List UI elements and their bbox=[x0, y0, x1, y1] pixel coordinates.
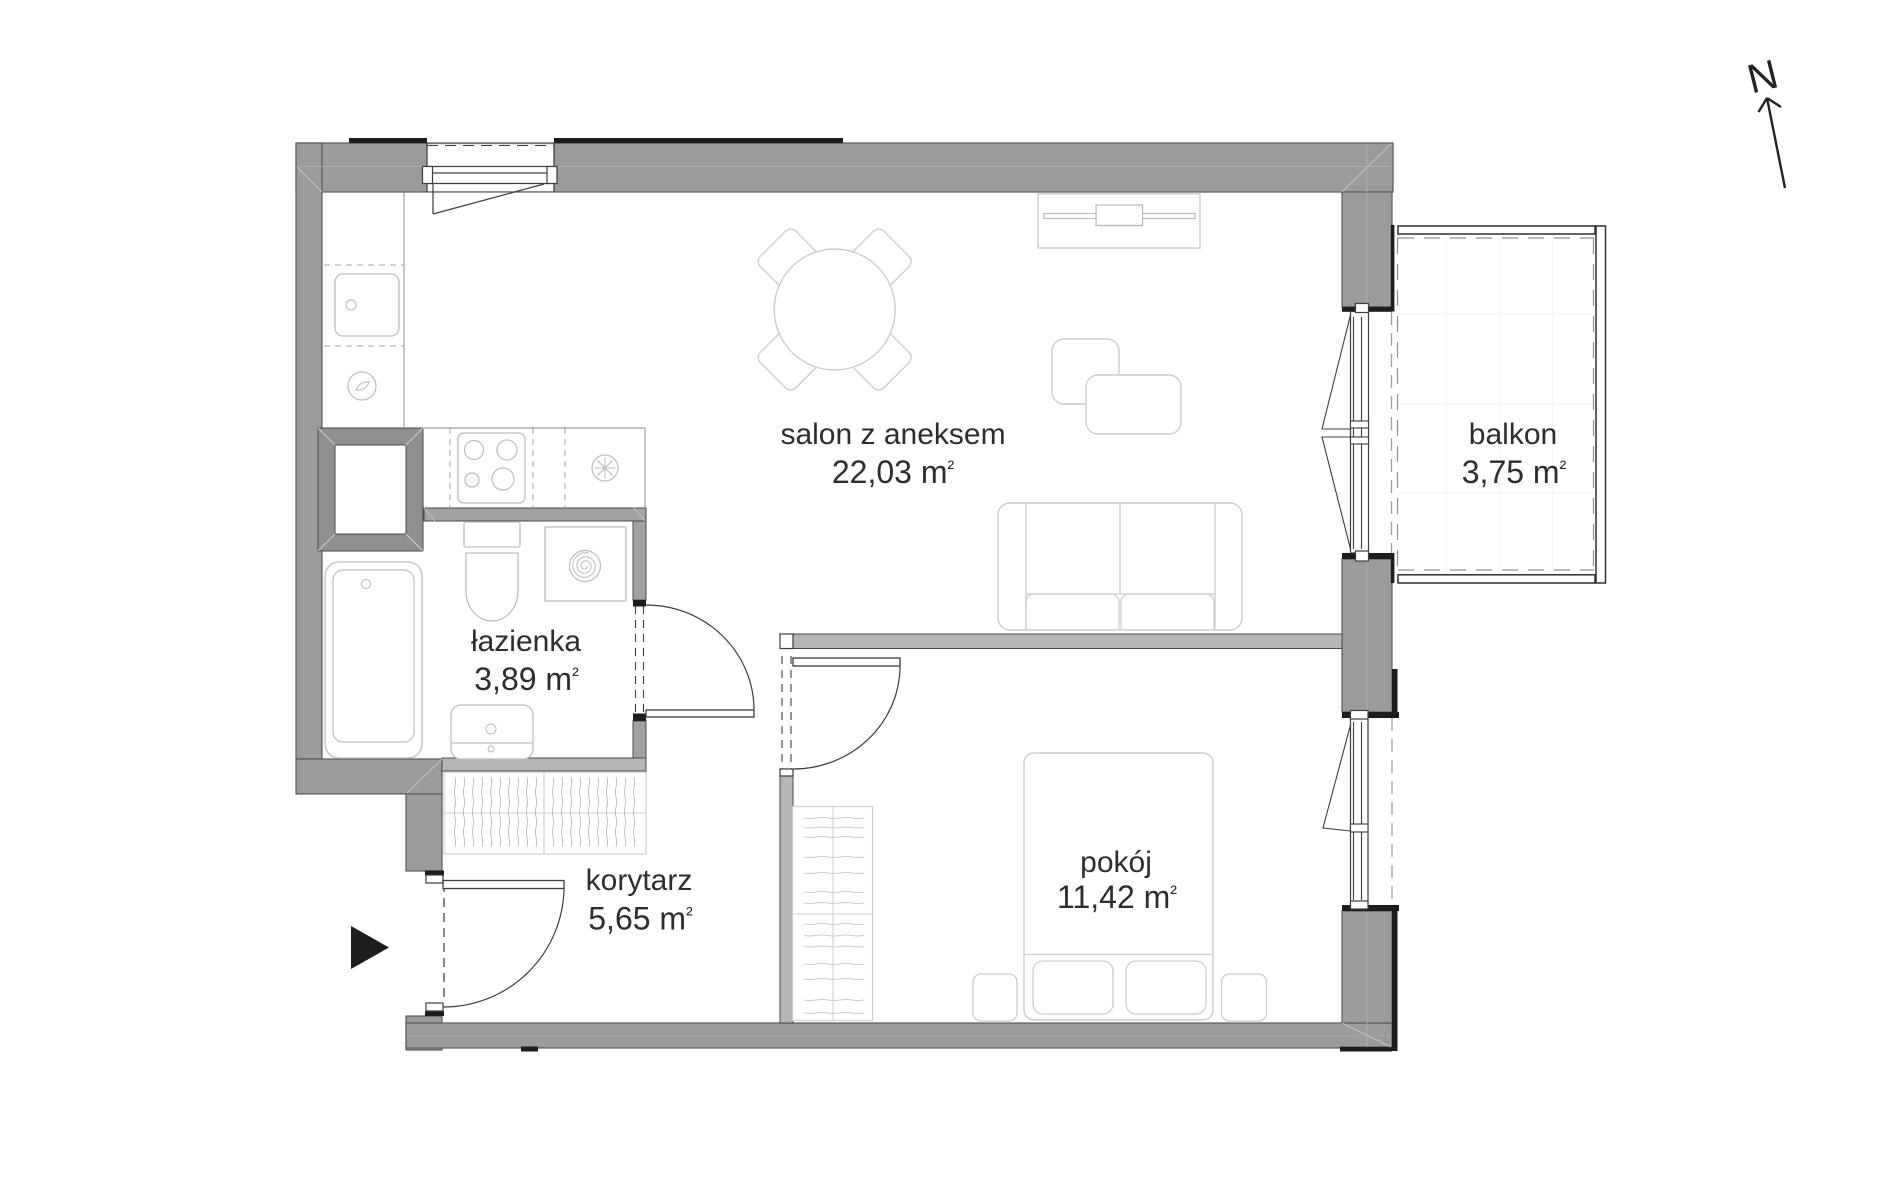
svg-text:N: N bbox=[1743, 51, 1783, 103]
svg-text:korytarz: korytarz bbox=[586, 864, 693, 897]
svg-text:5,65 m²: 5,65 m² bbox=[588, 901, 693, 937]
svg-text:3,75 m²: 3,75 m² bbox=[1462, 454, 1567, 490]
svg-text:łazienka: łazienka bbox=[471, 625, 581, 658]
svg-text:balkon: balkon bbox=[1469, 418, 1557, 451]
svg-text:3,89 m²: 3,89 m² bbox=[474, 661, 579, 697]
svg-text:11,42 m²: 11,42 m² bbox=[1057, 879, 1177, 915]
svg-text:pokój: pokój bbox=[1080, 846, 1152, 879]
svg-text:22,03 m²: 22,03 m² bbox=[832, 454, 955, 490]
svg-text:salon z aneksem: salon z aneksem bbox=[780, 418, 1005, 451]
